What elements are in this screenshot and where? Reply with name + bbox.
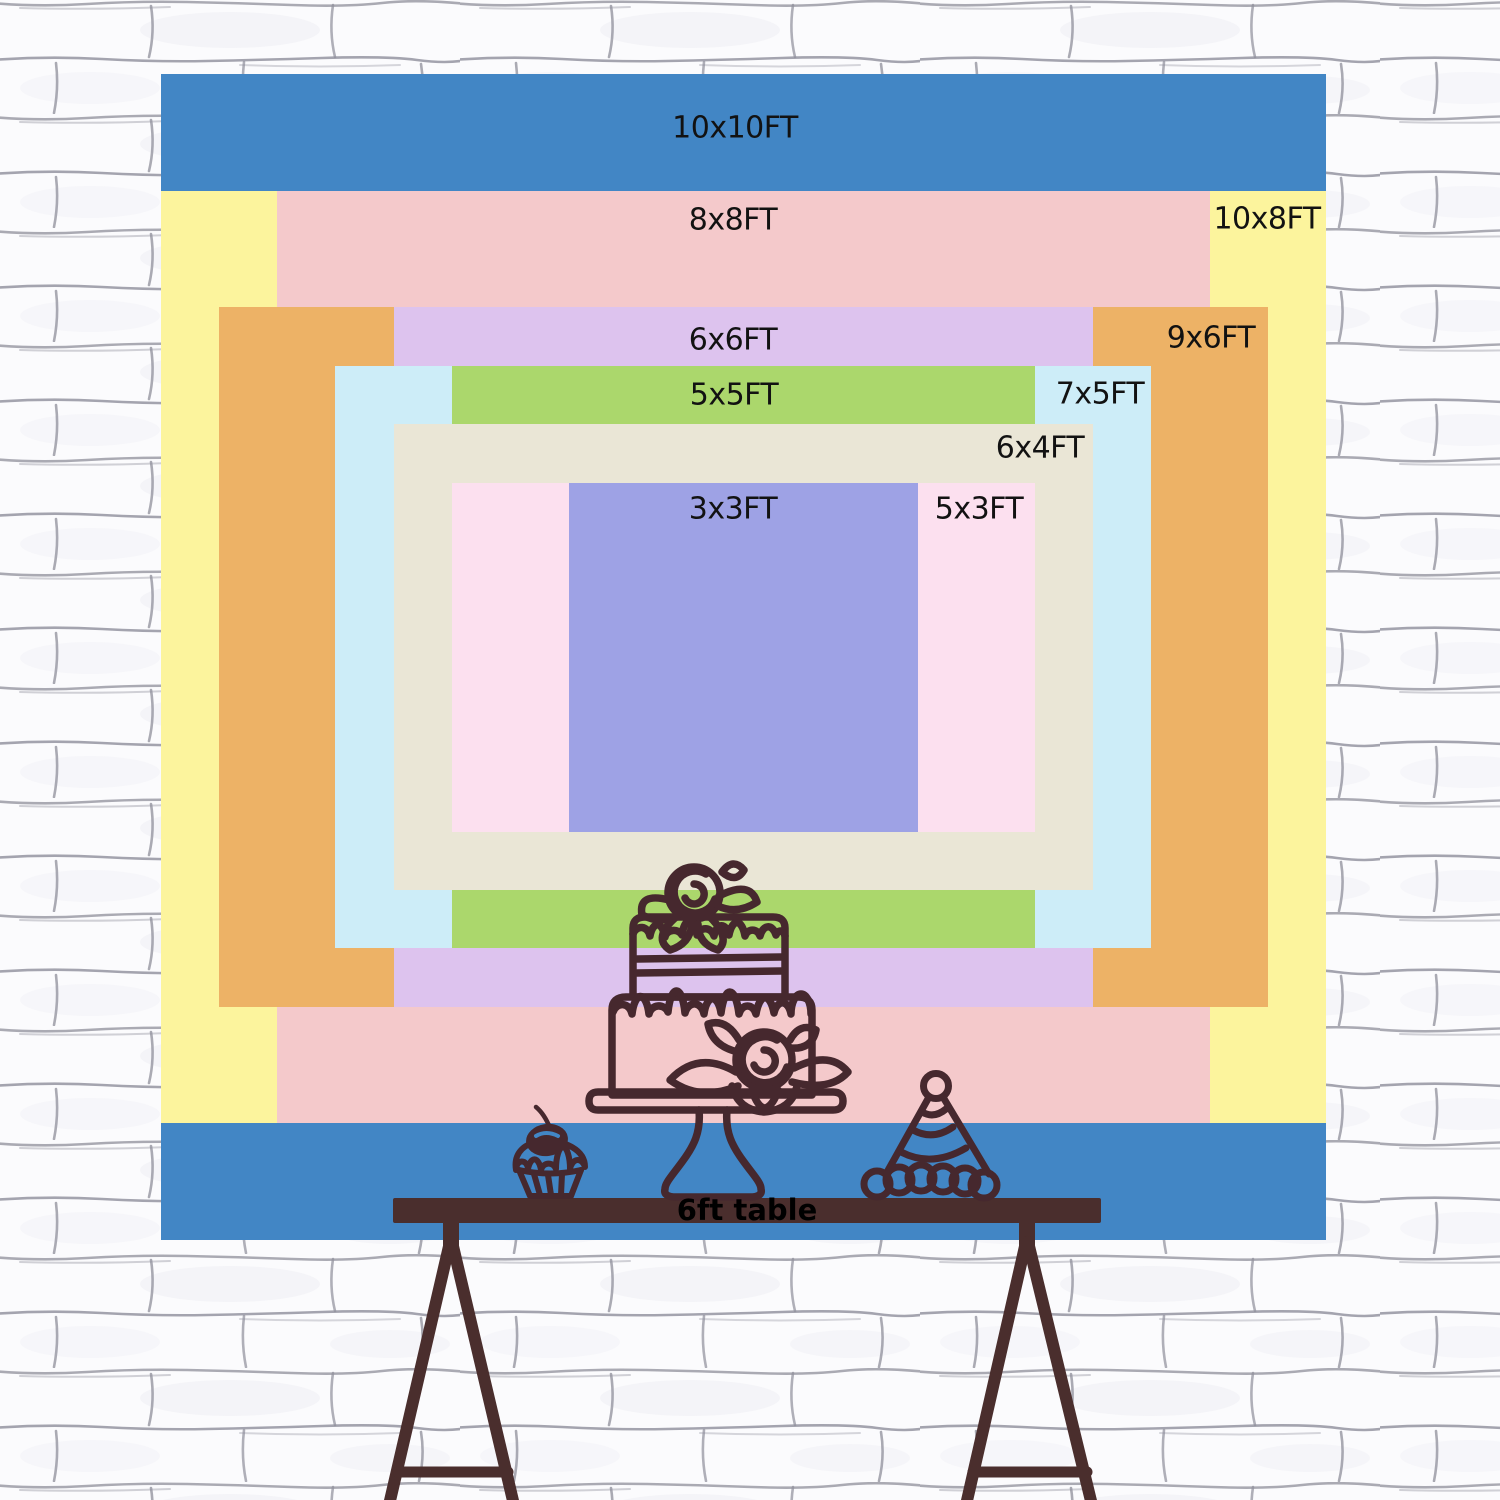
cupcake-illustration (516, 1107, 585, 1196)
cake-top-rose (642, 864, 757, 950)
table-and-treats (0, 0, 1500, 1500)
trestle-table (389, 1198, 1101, 1500)
cupcake-flute-3 (561, 1174, 562, 1195)
party-hat-stripe-3 (901, 1148, 966, 1159)
party-hat-trim (864, 1165, 997, 1198)
cupcake-flute-1 (534, 1174, 540, 1195)
table-label: 6ft table (677, 1193, 818, 1227)
table-legs (389, 1242, 1092, 1500)
cake-stand-pedestal (665, 1110, 762, 1197)
backdrop-size-comparison: 10x10FT 8x8FT 10x8FT 6x6FT 9x6FT 5x5FT 7… (0, 0, 1500, 1500)
cupcake-cherry (527, 1125, 566, 1156)
cupcake-flute-2 (548, 1175, 551, 1195)
party-hat-cone-right (943, 1097, 989, 1174)
cake-plate (589, 1092, 843, 1110)
cake-illustration (589, 864, 848, 1197)
party-hat-illustration (864, 1074, 997, 1199)
cake-middle-stripe-1 (637, 957, 781, 959)
cake-middle-stripe-2 (637, 971, 781, 973)
party-hat-stripe-2 (913, 1127, 953, 1135)
